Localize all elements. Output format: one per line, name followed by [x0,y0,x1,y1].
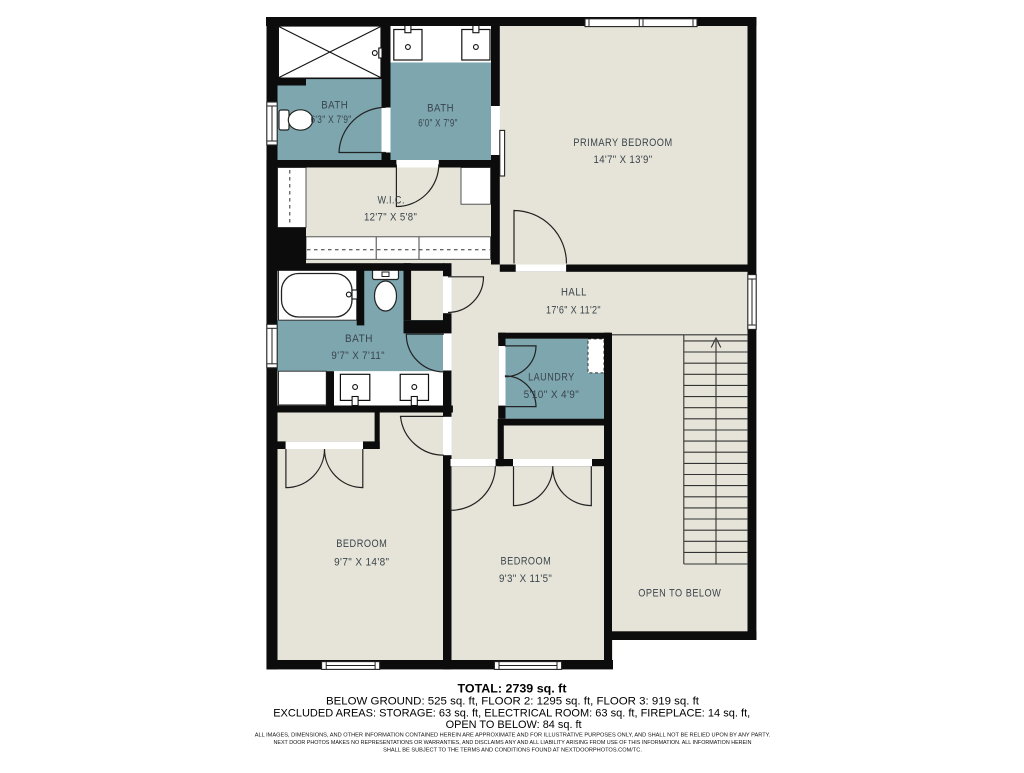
svg-text:14'7" X 13'9": 14'7" X 13'9" [594,154,653,166]
svg-text:BELOW GROUND: 525 sq. ft, FLOO: BELOW GROUND: 525 sq. ft, FLOOR 2: 1295 … [326,695,700,707]
svg-text:EXCLUDED AREAS: STORAGE: 63 sq: EXCLUDED AREAS: STORAGE: 63 sq. ft, ELEC… [273,707,750,719]
svg-text:6'3" X 7'9": 6'3" X 7'9" [311,114,352,126]
svg-text:W.I.C.: W.I.C. [377,195,405,207]
svg-text:BATH: BATH [427,102,454,114]
svg-text:6'0" X 7'9": 6'0" X 7'9" [418,117,458,129]
svg-text:NEXT DOOR PHOTOS MAKES NO REPR: NEXT DOOR PHOTOS MAKES NO REPRESENTATION… [274,740,752,746]
svg-text:BATH: BATH [321,100,348,112]
svg-text:12'7" X 5'8": 12'7" X 5'8" [364,212,417,224]
svg-text:9'3" X 11'5": 9'3" X 11'5" [499,573,552,585]
svg-text:SHALL BE SUBJECT TO THE TERMS: SHALL BE SUBJECT TO THE TERMS AND CONDIT… [383,748,642,754]
svg-text:BATH: BATH [345,333,373,345]
svg-text:5'10" X 4'9": 5'10" X 4'9" [524,389,580,401]
svg-text:LAUNDRY: LAUNDRY [528,371,575,383]
svg-text:BEDROOM: BEDROOM [336,538,387,550]
svg-text:HALL: HALL [561,287,587,299]
svg-text:9'7" X 7'11": 9'7" X 7'11" [331,350,385,362]
svg-text:9'7" X 14'8": 9'7" X 14'8" [334,556,389,568]
svg-text:17'6" X 11'2": 17'6" X 11'2" [546,305,601,317]
svg-text:PRIMARY BEDROOM: PRIMARY BEDROOM [573,137,672,149]
svg-text:OPEN TO BELOW: 84 sq. ft: OPEN TO BELOW: 84 sq. ft [446,719,583,731]
svg-text:ALL IMAGES, DIMENSIONS, AND OT: ALL IMAGES, DIMENSIONS, AND OTHER INFORM… [255,733,771,739]
svg-text:OPEN TO BELOW: OPEN TO BELOW [638,587,721,599]
svg-text:TOTAL: 2739 sq. ft: TOTAL: 2739 sq. ft [458,684,567,696]
svg-text:BEDROOM: BEDROOM [501,556,552,568]
